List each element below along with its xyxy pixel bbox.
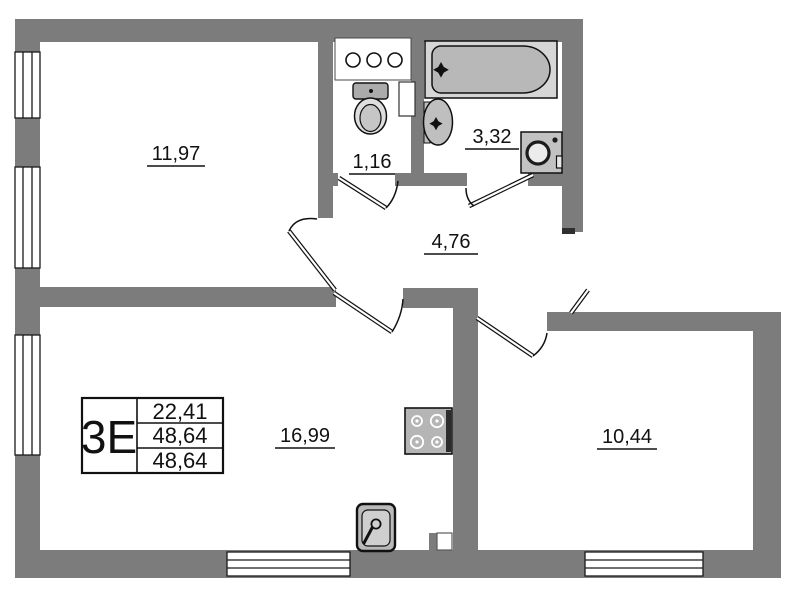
area-label-wc: 1,16 [353,151,392,173]
area-label-hallway: 4,76 [432,231,471,253]
unit-type-label: 3E [81,411,137,463]
bathtub-icon [425,41,557,98]
window-left-1 [15,52,40,118]
floor-plan: 11,97 1,16 3,32 4,76 16,99 10,44 3E 22,4… [0,0,799,600]
stove-icon [405,408,452,454]
apartment-stamp: 3E 22,41 48,64 48,64 [81,398,223,473]
area-label-bedroom: 10,44 [602,426,652,448]
area-label-kitchen-living: 16,99 [280,425,330,447]
area-label-room-top-left: 11,97 [152,143,201,165]
kitchen-sink-icon [357,504,395,551]
stamp-total-area-with-balcony: 48,64 [152,448,207,473]
stamp-living-area: 22,41 [152,399,207,424]
wash-basin-icon [424,99,453,145]
floor-plan-canvas: 11,97 1,16 3,32 4,76 16,99 10,44 3E 22,4… [0,0,799,600]
window-left-3 [15,335,40,455]
window-left-2 [15,167,40,268]
washing-machine-icon [521,132,562,173]
wc-niche [399,82,415,116]
area-label-bathroom: 3,32 [473,126,512,148]
toilet-icon [353,83,388,134]
window-bottom-kitchen [227,552,350,576]
vent-shelf-icon [335,38,411,80]
stamp-total-area: 48,64 [152,423,207,448]
wall-duct-niche [437,533,452,550]
window-bottom-bedroom [585,552,703,576]
